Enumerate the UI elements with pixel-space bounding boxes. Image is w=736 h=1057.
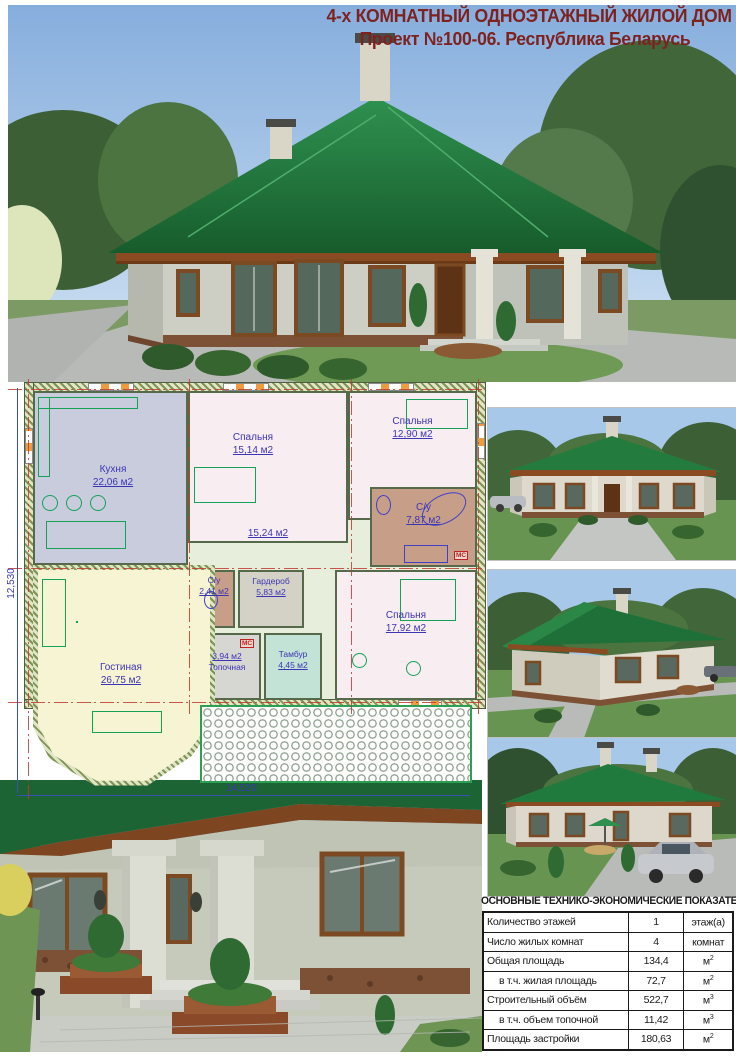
indicators-title: ОСНОВНЫЕ ТЕХНИКО-ЭКОНОМИЧЕСКИЕ ПОКАЗАТЕЛ…: [481, 895, 728, 907]
bollard-lamp: [31, 988, 45, 996]
table-row: Строительный объём 522,7 м3: [483, 991, 733, 1011]
table-row: в т.ч. объем топочной 11,42 м3: [483, 1010, 733, 1030]
label-tambour: Тамбур4,45 м2: [255, 649, 331, 671]
label-bedroom-2: Спальня12,90 м2: [360, 415, 465, 441]
mc-badge: МС: [454, 551, 468, 560]
table-row: Число жилых комнат 4 комнат: [483, 932, 733, 952]
label-bedroom-1: Спальня15,14 м2: [198, 431, 308, 457]
title-line-1: 4-х КОМНАТНЫЙ ОДНОЭТАЖНЫЙ ЖИЛОЙ ДОМ: [326, 5, 723, 28]
label-kitchen: Кухня22,06 м2: [63, 463, 163, 489]
table-row: Общая площадь 134,4 м2: [483, 952, 733, 972]
terrace-paving: [200, 705, 472, 783]
label-wc-small: С/у2,41 м2: [188, 575, 240, 597]
entrance-closeup-photo: [0, 780, 482, 1052]
label-wardrobe: Гардероб5,83 м2: [234, 576, 308, 598]
porch-column: [564, 251, 581, 339]
porch-column: [476, 251, 493, 339]
entrance-door: [436, 265, 464, 335]
indicators-block: ОСНОВНЫЕ ТЕХНИКО-ЭКОНОМИЧЕСКИЕ ПОКАЗАТЕЛ…: [480, 895, 736, 1051]
dimension-bottom-value: 14,520: [226, 783, 257, 794]
render-front-view: [487, 407, 736, 561]
dimension-left-value: 12,530: [6, 568, 17, 599]
label-hall: 15,24 м2: [223, 527, 313, 540]
dimension-line-bottom: [17, 795, 470, 796]
mc-badge: МС: [240, 639, 254, 648]
project-title: 4-х КОМНАТНЫЙ ОДНОЭТАЖНЫЙ ЖИЛОЙ ДОМ Прое…: [326, 5, 723, 50]
label-bedroom-3: Спальня17,92 м2: [350, 609, 462, 635]
main-exterior-photo: [8, 5, 736, 382]
floor-plan: 12,530 14,520 Кухня22,06 м2 Спальня15,14…: [8, 383, 482, 780]
table-row: Площадь застройки 180,63 м2: [483, 1030, 733, 1050]
render-side-view: [487, 569, 736, 739]
label-living: Гостиная26,75 м2: [66, 661, 176, 687]
table-row: Количество этажей 1 этаж(а): [483, 912, 733, 932]
indicators-table: Количество этажей 1 этаж(а) Число жилых …: [482, 911, 734, 1051]
table-row: в т.ч. жилая площадь 72,7 м2: [483, 971, 733, 991]
dimension-line-left: [17, 388, 18, 793]
label-bathroom-main: С/у7,87 м2: [376, 501, 471, 527]
render-rear-view: [487, 737, 736, 897]
label-boiler: 3,94 м2Топочная: [192, 651, 262, 673]
title-line-2: Проект №100-06. Республика Беларусь: [326, 28, 723, 51]
project-sheet: 4-х КОМНАТНЫЙ ОДНОЭТАЖНЫЙ ЖИЛОЙ ДОМ Прое…: [0, 0, 736, 1057]
